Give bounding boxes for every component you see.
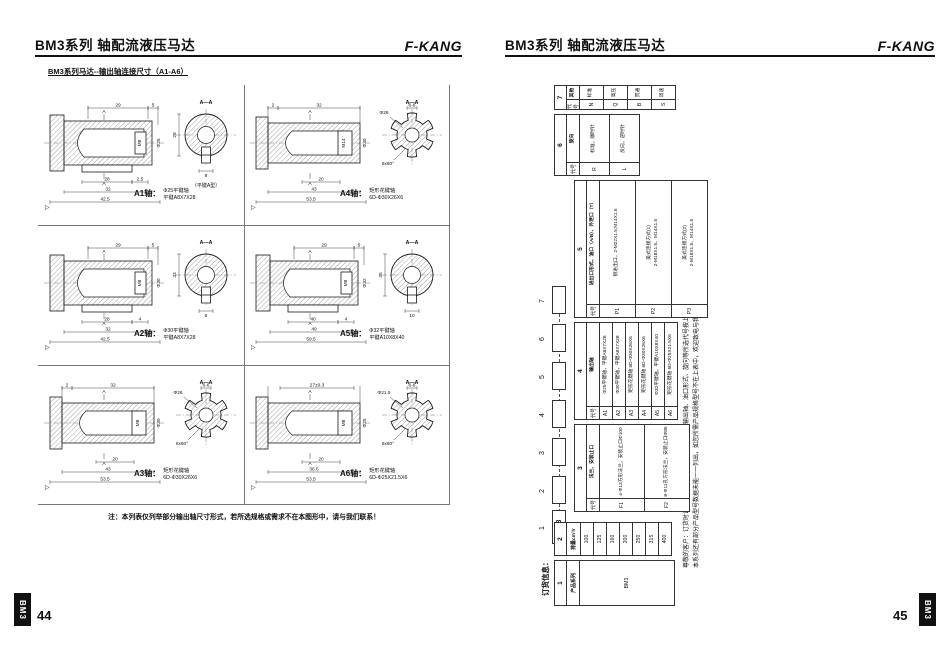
svg-text:2: 2 [272, 103, 275, 109]
code-box-7 [552, 286, 566, 314]
spine-tab: BM3 [14, 593, 31, 626]
svg-text:29: 29 [115, 243, 121, 249]
ordering-title: 订货信息： [540, 559, 551, 597]
technical-drawing: M8295Φ324044959.5AA▷A—A3510 [244, 225, 450, 363]
shaft-cell-A5: M8295Φ324044959.5AA▷A—A3510A5轴：Φ32平键轴平键A… [244, 225, 450, 365]
header-rule [35, 55, 462, 57]
svg-text:M14: M14 [341, 138, 347, 148]
svg-text:M8: M8 [341, 419, 347, 426]
svg-text:53.5: 53.5 [306, 477, 316, 483]
brand-logo: F-KANG [405, 38, 462, 54]
svg-text:▷: ▷ [45, 205, 50, 211]
shaft-caption-A4: A4轴：矩形花键轴6D-Φ30X26X6 [340, 188, 403, 201]
svg-text:（平键A型）: （平键A型） [192, 182, 220, 189]
svg-text:20: 20 [318, 177, 324, 183]
technical-drawing: M14232Φ30204353.5AA▷A—A6-6Φ266x60° [244, 85, 450, 223]
svg-text:▷: ▷ [45, 345, 50, 351]
svg-text:A: A [308, 109, 312, 115]
svg-text:42.5: 42.5 [100, 197, 110, 203]
table-value: 100 [580, 523, 593, 555]
svg-text:Φ25: Φ25 [362, 418, 368, 427]
page-title: BM3系列 轴配流液压马达 [35, 34, 195, 54]
svg-text:6-6: 6-6 [409, 383, 416, 389]
svg-text:Φ26: Φ26 [379, 110, 388, 116]
svg-text:4: 4 [345, 317, 348, 323]
code-box-3 [552, 438, 566, 466]
code-box-4 [552, 400, 566, 428]
table-row-A3: A3矩形花键轴 6D-Φ30X26X6 [625, 323, 638, 419]
svg-text:36.6: 36.6 [309, 467, 319, 473]
svg-text:▷: ▷ [45, 485, 50, 491]
svg-text:6-6: 6-6 [409, 103, 416, 109]
table-value: 125 [593, 523, 606, 555]
table-row-A5: A5Φ32平键轴，平键A10X8X40 [651, 323, 664, 419]
svg-text:53.5: 53.5 [100, 477, 110, 483]
table-row-A4: A4矩形花键轴 6D-Φ30X26X6 [638, 323, 651, 419]
ordering-table-4: 4代号输出轴A1Φ25平键轴，平键A8X7X28A2Φ30平键轴，平键A8X7X… [574, 322, 678, 420]
svg-text:8: 8 [205, 313, 208, 319]
table-row-A6: A6矩形花键轴 6D-Φ25X21.5X6 [664, 323, 677, 419]
svg-text:6x60°: 6x60° [382, 441, 394, 447]
svg-text:A—A: A—A [200, 100, 213, 106]
right-page-header: BM3系列 轴配流液压马达 F-KANG [505, 36, 935, 54]
svg-text:A: A [308, 389, 312, 395]
shaft-cell-A3: M8232Φ30204353.5AA▷A—A6-6Φ266x60°A3轴：矩形花… [38, 365, 244, 505]
svg-text:28: 28 [172, 132, 178, 138]
svg-text:33: 33 [172, 272, 178, 278]
svg-text:29: 29 [115, 103, 121, 109]
ordering-info-panel: 订货信息： 尊敬的客户：订货时请将产品系列、排量、法兰止口、输出轴、油口形式、旋… [536, 85, 708, 608]
code-position-number-1: 1 [539, 512, 548, 544]
table-row-R: R标准，顺时针 [579, 115, 609, 175]
footnote: 注：本列表仅列举部分输出轴尺寸形式，若所选规格或需求不在本图形中，请与我们联系！ [38, 511, 450, 521]
ordering-table-2: 2排量cm³/r100125160200250315400 [554, 522, 672, 556]
page-number: 45 [893, 608, 907, 623]
svg-text:32: 32 [316, 103, 322, 109]
page-number: 44 [37, 608, 51, 623]
svg-text:A: A [102, 249, 106, 255]
svg-text:6x60°: 6x60° [176, 441, 188, 447]
code-box-6 [552, 324, 566, 352]
code-box-2 [552, 476, 566, 504]
table-row-P1: P1侧进出口，2-M22X1.5;M14X1.5 [599, 181, 635, 317]
svg-text:Φ26: Φ26 [173, 390, 182, 396]
shaft-caption-A3: A3轴：矩形花键轴6D-Φ30X26X6 [134, 468, 197, 481]
table-row-A1: A1Φ25平键轴，平键A8X7X28 [599, 323, 612, 419]
table-value: BM3 [579, 561, 674, 605]
table-row-L: L反向，逆时针 [609, 115, 639, 175]
drawing-grid: M8295Φ25282.53242.5AA▷A—A288（平键A型）A1轴：Φ2… [38, 85, 450, 505]
ordering-table-6: 6代号旋向R标准，顺时针L反向，逆时针 [554, 114, 640, 176]
table-row-B: B贯通 [627, 86, 651, 109]
shaft-caption-A6: A6轴：矩形花键轴6D-Φ25X21.5X6 [340, 468, 407, 481]
svg-text:▷: ▷ [251, 345, 256, 351]
header-rule [505, 55, 935, 57]
shaft-cell-A6: M827±0.3Φ252036.653.5AA▷A—A6-6Φ21.56x60°… [244, 365, 450, 505]
table-value: 250 [632, 523, 645, 555]
svg-text:27±0.3: 27±0.3 [310, 383, 325, 389]
table-value: 315 [645, 523, 658, 555]
shaft-caption-A5: A5轴：Φ32平键轴平键A10X8X40 [340, 328, 404, 341]
left-page-header: BM3系列 轴配流液压马达 F-KANG [35, 36, 462, 54]
svg-text:4: 4 [139, 317, 142, 323]
table-row-P3: P3美式连接方式(2)2-M18X1.5、M14X1.5 [671, 181, 707, 317]
svg-text:Φ30: Φ30 [362, 138, 368, 147]
table-row-Q: Q高压 [603, 86, 627, 109]
ordering-landscape: 订货信息： 尊敬的客户：订货时请将产品系列、排量、法兰止口、输出轴、油口形式、旋… [536, 85, 708, 608]
svg-text:M8: M8 [137, 279, 143, 286]
table-row-S: S调速 [651, 86, 675, 109]
svg-text:49: 49 [311, 327, 317, 333]
ordering-table-7: 7代号其他N标准Q高压B贯通S调速 [554, 85, 676, 110]
svg-text:M8: M8 [343, 279, 349, 286]
svg-text:42.5: 42.5 [100, 337, 110, 343]
spine-tab: BM3 [919, 593, 936, 626]
technical-drawing: M8232Φ30204353.5AA▷A—A6-6Φ266x60° [38, 365, 244, 503]
svg-text:10: 10 [409, 313, 415, 319]
shaft-caption-A1: A1轴：Φ25平键轴平键A8X7X28 [134, 188, 196, 201]
code-position-number-3: 3 [539, 440, 548, 466]
catalog-spread: { "pages": { "left": { "header": {"title… [0, 0, 950, 649]
svg-text:5: 5 [152, 103, 155, 109]
technical-drawing: M8295Φ25282.53242.5AA▷A—A288（平键A型） [38, 85, 244, 223]
shaft-cell-A4: M14232Φ30204353.5AA▷A—A6-6Φ266x60°A4轴：矩形… [244, 85, 450, 225]
svg-text:Φ30: Φ30 [156, 278, 162, 287]
svg-text:5: 5 [152, 243, 155, 249]
svg-text:5: 5 [358, 243, 361, 249]
section-subtitle: BM3系列马达--输出轴连接尺寸（A1-A6） [48, 66, 188, 77]
svg-text:2.5: 2.5 [137, 177, 144, 183]
svg-text:Φ30: Φ30 [156, 418, 162, 427]
code-box-5 [552, 362, 566, 390]
svg-text:A: A [308, 249, 312, 255]
svg-text:35: 35 [378, 272, 384, 278]
table-row-N: N标准 [579, 86, 603, 109]
svg-text:A: A [102, 109, 106, 115]
technical-drawing: M827±0.3Φ252036.653.5AA▷A—A6-6Φ21.56x60° [244, 365, 450, 503]
brand-logo: F-KANG [878, 38, 935, 54]
svg-text:43: 43 [105, 467, 111, 473]
page-title: BM3系列 轴配流液压马达 [505, 34, 665, 54]
code-position-number-7: 7 [539, 288, 548, 314]
svg-text:▷: ▷ [251, 485, 256, 491]
svg-text:2: 2 [66, 383, 69, 389]
table-value: 160 [606, 523, 619, 555]
svg-text:A—A: A—A [406, 240, 419, 246]
svg-text:32: 32 [105, 187, 111, 193]
code-position-number-5: 5 [539, 364, 548, 390]
shaft-cell-A2: M8295Φ302843242.5AA▷A—A338A2轴：Φ30平键轴平键A8… [38, 225, 244, 365]
svg-text:M8: M8 [137, 139, 143, 146]
svg-text:6x60°: 6x60° [382, 161, 394, 167]
ordering-table-5: 5代号进出口形式、油口（A/B）、外泄口（T）P1侧进出口，2-M22X1.5;… [574, 180, 708, 318]
svg-text:A: A [102, 389, 106, 395]
svg-text:M8: M8 [135, 419, 141, 426]
table-value: 200 [619, 523, 632, 555]
shaft-cell-A1: M8295Φ25282.53242.5AA▷A—A288（平键A型）A1轴：Φ2… [38, 85, 244, 225]
svg-text:43: 43 [311, 187, 317, 193]
svg-text:8: 8 [205, 173, 208, 179]
svg-text:6-6: 6-6 [203, 383, 210, 389]
technical-drawing: M8295Φ302843242.5AA▷A—A338 [38, 225, 244, 363]
svg-text:A—A: A—A [200, 240, 213, 246]
table-row-A2: A2Φ30平键轴，平键A8X7X28 [612, 323, 625, 419]
code-position-number-2: 2 [539, 478, 548, 504]
shaft-caption-A2: A2轴：Φ30平键轴平键A8X7X28 [134, 328, 196, 341]
svg-text:Φ32: Φ32 [362, 278, 368, 287]
ordering-table-3: 3代号法兰、安装止口F14-Φ13方形法兰，安装止口Φ100F28-Φ11孔方形… [574, 424, 690, 512]
svg-text:20: 20 [112, 457, 118, 463]
code-position-number-6: 6 [539, 326, 548, 352]
svg-text:29: 29 [321, 243, 327, 249]
table-value: 400 [658, 523, 671, 555]
svg-text:32: 32 [105, 327, 111, 333]
svg-text:20: 20 [318, 457, 324, 463]
svg-text:▷: ▷ [251, 205, 256, 211]
table-row-F1: F14-Φ13方形法兰，安装止口Φ100 [599, 425, 644, 511]
code-position-number-4: 4 [539, 402, 548, 428]
table-row-P2: P2美式连接方式(1)2-M18X1.5、M14X1.5 [635, 181, 671, 317]
svg-text:Φ21.5: Φ21.5 [377, 390, 390, 396]
svg-text:Φ25: Φ25 [156, 138, 162, 147]
ordering-note-2: 本系列还有部分产品型号数据未能一一列出，如您所需产品规格型号不在上表中，欢迎致电… [693, 94, 703, 568]
table-row-F2: F28-Φ11孔方形法兰，安装止口Φ85 [644, 425, 689, 511]
svg-text:53.5: 53.5 [306, 197, 316, 203]
svg-text:59.5: 59.5 [306, 337, 316, 343]
svg-text:32: 32 [110, 383, 116, 389]
ordering-table-1: 1产品系列BM3 [554, 560, 675, 606]
